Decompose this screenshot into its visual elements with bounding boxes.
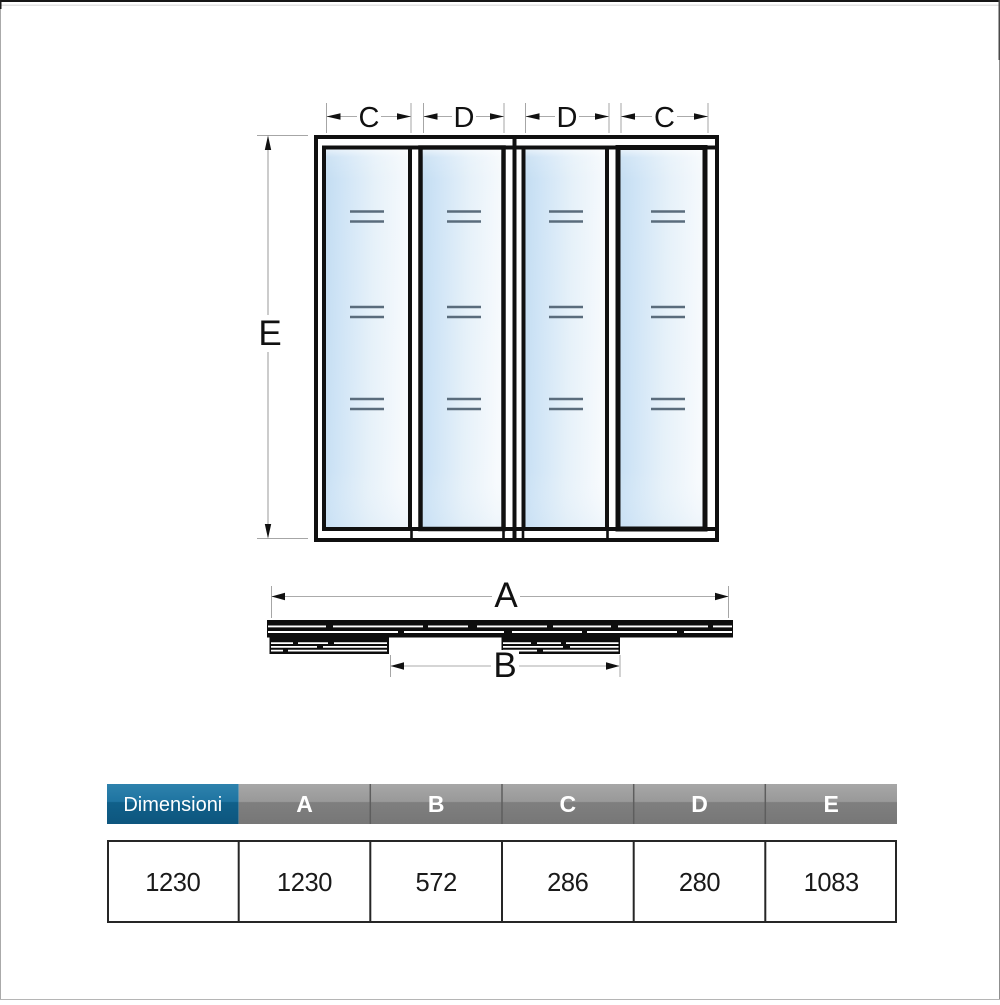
svg-text:C: C <box>359 102 380 134</box>
svg-text:1230: 1230 <box>145 869 200 897</box>
svg-text:B: B <box>428 791 445 817</box>
svg-text:E: E <box>258 314 281 353</box>
svg-text:Dimensioni: Dimensioni <box>123 794 222 816</box>
svg-text:1083: 1083 <box>804 869 859 897</box>
svg-text:D: D <box>691 791 708 817</box>
svg-text:C: C <box>559 791 576 817</box>
svg-text:286: 286 <box>547 869 589 897</box>
svg-text:C: C <box>654 102 675 134</box>
svg-text:D: D <box>557 102 578 134</box>
svg-text:E: E <box>824 791 839 817</box>
svg-text:A: A <box>494 576 518 615</box>
svg-text:B: B <box>493 646 516 685</box>
svg-text:1230: 1230 <box>277 869 332 897</box>
svg-text:D: D <box>454 102 475 134</box>
svg-text:280: 280 <box>679 869 721 897</box>
svg-text:572: 572 <box>416 869 457 897</box>
svg-text:A: A <box>296 791 313 817</box>
